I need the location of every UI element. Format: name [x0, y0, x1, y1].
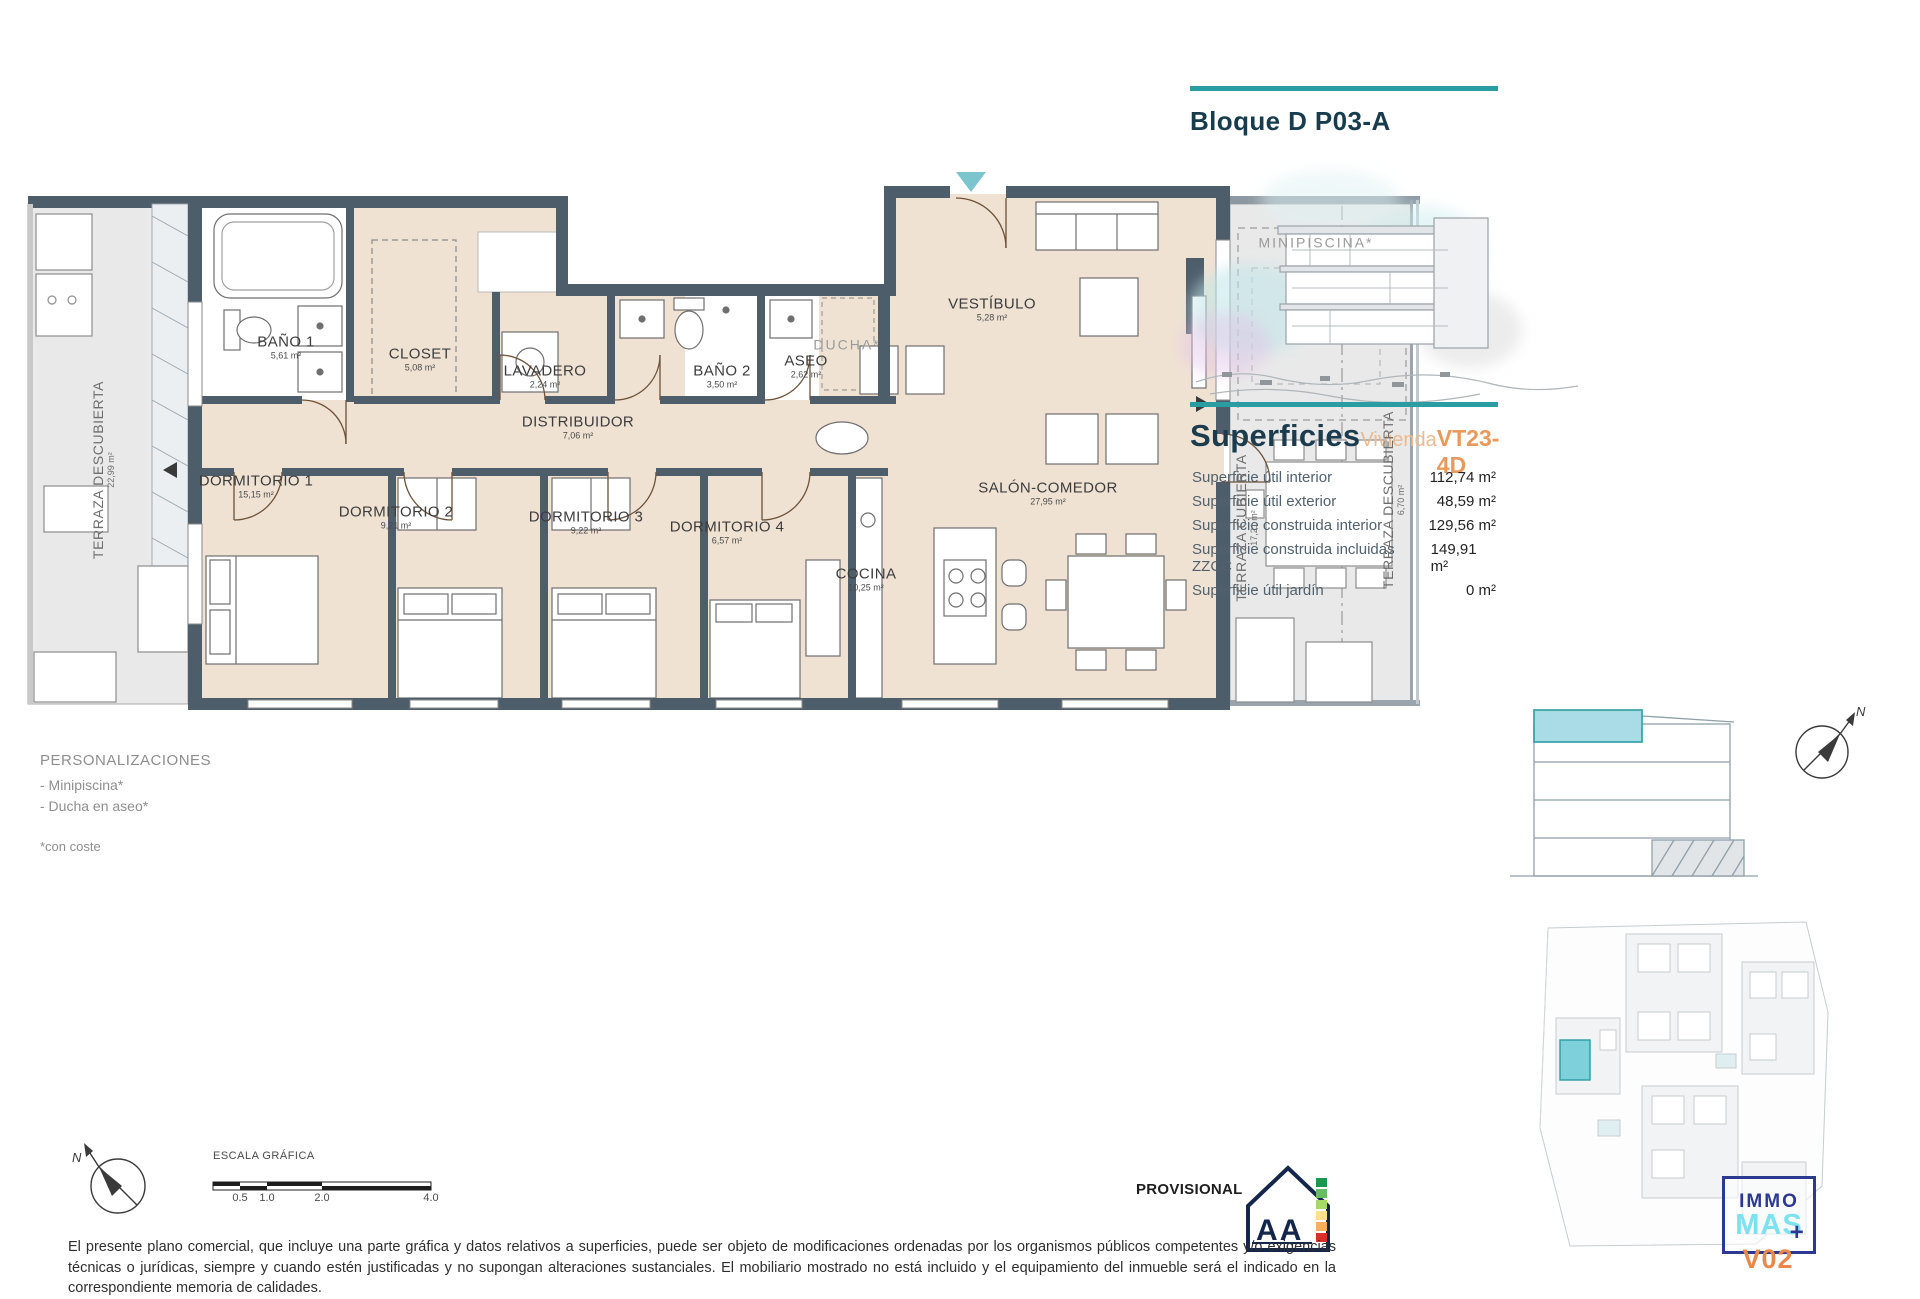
superficies-category: Vivienda: [1360, 429, 1436, 452]
superficies-table: Superficie útil interior112,74 m²Superfi…: [1190, 466, 1498, 603]
svg-text:N: N: [72, 1150, 82, 1165]
plan-graphics: N N A A: [0, 0, 1920, 1280]
superficies-row: Superficie construida interior129,56 m²: [1190, 514, 1498, 538]
superficies-row-value: 149,91 m²: [1431, 541, 1496, 575]
logo-mas-text: MAS +: [1735, 1212, 1802, 1239]
superficies-row-label: Superficie útil interior: [1192, 469, 1332, 486]
superficies-row-label: Superficie construida incluidas ZZCC: [1192, 541, 1431, 575]
personalizaciones-items: - Minipiscina*- Ducha en aseo*: [40, 775, 211, 817]
superficies-row: Superficie útil jardín0 m²: [1190, 579, 1498, 603]
superficies-row-label: Superficie construida interior: [1192, 517, 1382, 534]
personalizaciones-footnote: *con coste: [40, 839, 211, 854]
section-diagram: [1510, 710, 1758, 876]
superficies-row-value: 129,56 m²: [1428, 517, 1496, 534]
scale-tick-label: 1.0: [259, 1192, 274, 1204]
svg-text:N: N: [1856, 704, 1866, 719]
superficies-row: Superficie útil exterior48,59 m²: [1190, 490, 1498, 514]
entrance-arrow-icon: [956, 172, 986, 192]
superficies-row: Superficie útil interior112,74 m²: [1190, 466, 1498, 490]
scale-label: ESCALA GRÁFICA: [213, 1150, 315, 1162]
provisional-label: PROVISIONAL: [1136, 1181, 1243, 1198]
immomas-logo: IMMO MAS + V02: [1722, 1176, 1814, 1275]
party-wall-hatch: [152, 204, 188, 586]
logo-version: V02: [1722, 1244, 1814, 1275]
superficies-row-value: 48,59 m²: [1437, 493, 1496, 510]
superficies-row-label: Superficie útil exterior: [1192, 493, 1336, 510]
personalizaciones-item: - Minipiscina*: [40, 775, 211, 796]
accent-rule-mid: [1190, 402, 1498, 407]
logo-plus-icon: +: [1790, 1219, 1805, 1246]
scale-bar: [213, 1182, 431, 1190]
immomas-logo-box: IMMO MAS +: [1722, 1176, 1816, 1254]
scale-tick-label: 0.5: [232, 1192, 247, 1204]
superficies-row-value: 0 m²: [1466, 582, 1496, 599]
disclaimer-text: El presente plano comercial, que incluye…: [68, 1237, 1336, 1299]
accent-rule-top: [1190, 86, 1498, 91]
scale-tick-label: 2.0: [314, 1192, 329, 1204]
north-compass-icon: N: [72, 1143, 145, 1213]
floorplan-page: { "right_panel": { "block_title": "Bloqu…: [0, 0, 1920, 1280]
superficies-row-label: Superficie útil jardín: [1192, 582, 1324, 599]
personalizaciones-block: PERSONALIZACIONES - Minipiscina*- Ducha …: [40, 752, 211, 854]
superficies-row: Superficie construida incluidas ZZCC149,…: [1190, 538, 1498, 579]
personalizaciones-heading: PERSONALIZACIONES: [40, 752, 211, 769]
superficies-row-value: 112,74 m²: [1430, 469, 1496, 486]
personalizaciones-item: - Ducha en aseo*: [40, 796, 211, 817]
scale-tick-label: 4.0: [423, 1192, 438, 1204]
superficies-heading: Superficies: [1190, 418, 1360, 454]
page-title: Bloque D P03-A: [1190, 106, 1391, 137]
north-compass-icon: N: [1796, 704, 1866, 778]
